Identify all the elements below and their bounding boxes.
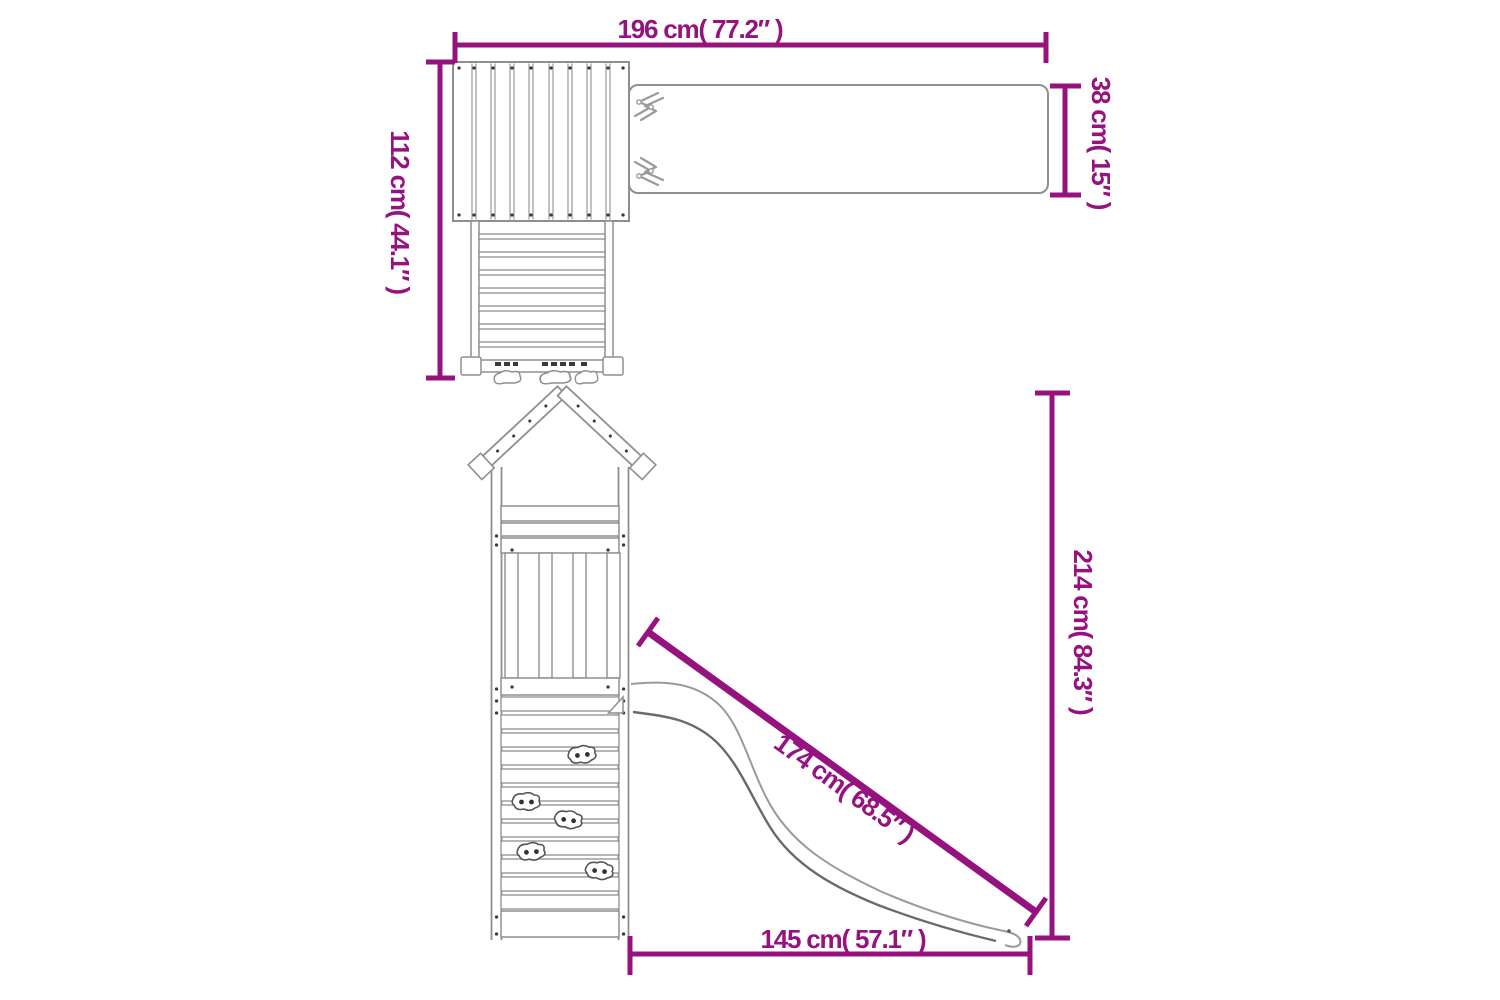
side-view: 214 cm( 84.3″ ) 174 cm( 68.5″ ) 145 cm( … <box>468 384 1098 975</box>
slide-upper-edge <box>631 683 1020 947</box>
dimension-total-width: 196 cm( 77.2″ ) <box>455 14 1046 63</box>
dimension-base-width: 145 cm( 57.1″ ) <box>630 924 1030 975</box>
climbing-wall <box>501 697 619 937</box>
climbing-hold <box>517 842 546 861</box>
dim-label-base-width: 145 cm( 57.1″ ) <box>760 924 926 954</box>
playset-dimension-diagram: 196 cm( 77.2″ ) 112 cm( 44.1″ ) 38 cm( 1… <box>0 0 1500 1000</box>
dim-label-total-height: 214 cm( 84.3″ ) <box>1068 549 1098 715</box>
ladder-rail <box>471 221 479 361</box>
climbing-hold <box>512 793 540 811</box>
dim-label-slide-length: 174 cm( 68.5″ ) <box>769 727 921 848</box>
railing <box>501 506 620 695</box>
base-foot <box>461 357 481 375</box>
roof-panel <box>453 62 629 221</box>
swing-beam-body <box>629 85 1048 193</box>
dimension-total-height: 214 cm( 84.3″ ) <box>1035 393 1098 938</box>
deck-board <box>501 678 619 695</box>
diagram-canvas: 196 cm( 77.2″ ) 112 cm( 44.1″ ) 38 cm( 1… <box>0 0 1500 1000</box>
roof-top-view <box>453 62 629 221</box>
slide <box>609 683 1021 947</box>
balusters <box>505 553 620 678</box>
dimension-beam-width: 38 cm( 15″ ) <box>1050 77 1116 210</box>
dimension-slide-length: 174 cm( 68.5″ ) <box>638 618 1046 926</box>
top-view: 196 cm( 77.2″ ) 112 cm( 44.1″ ) 38 cm( 1… <box>385 14 1116 384</box>
dim-label-total-width: 196 cm( 77.2″ ) <box>617 14 783 44</box>
swing-beam <box>629 85 1048 193</box>
dim-label-beam-width: 38 cm( 15″ ) <box>1086 77 1116 210</box>
kick-board <box>501 911 619 937</box>
base-foot <box>603 357 623 375</box>
ladder-top-view <box>461 221 623 384</box>
slide-lower-edge <box>633 712 996 941</box>
ladder-rail <box>605 221 613 361</box>
slide-foot-screw <box>1007 929 1011 933</box>
dim-label-total-depth: 112 cm( 44.1″ ) <box>385 130 415 294</box>
dimension-total-depth: 112 cm( 44.1″ ) <box>385 62 455 378</box>
ladder-rungs <box>479 234 605 347</box>
roof-side-view <box>468 384 656 480</box>
